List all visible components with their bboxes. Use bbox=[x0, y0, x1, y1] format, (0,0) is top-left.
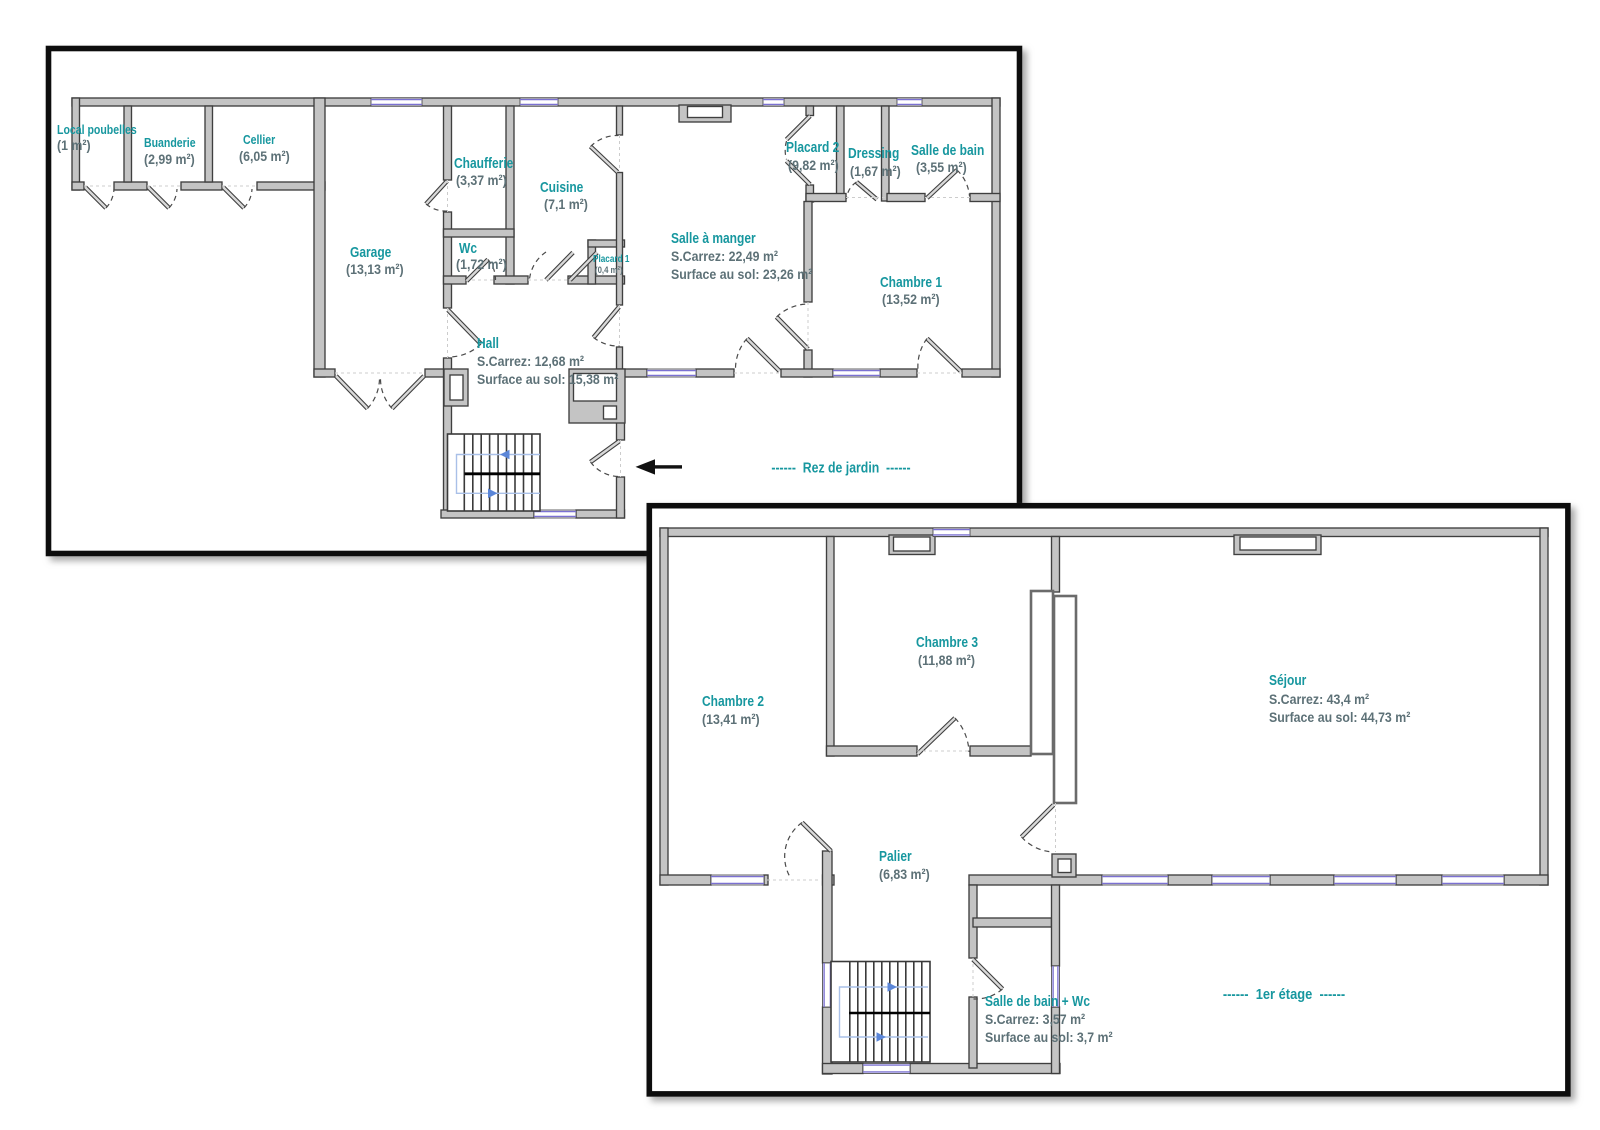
svg-text:(0,4 m²): (0,4 m²) bbox=[595, 264, 623, 275]
svg-text:S.Carrez: 22,49 m²: S.Carrez: 22,49 m² bbox=[671, 248, 779, 264]
svg-text:(13,13 m²): (13,13 m²) bbox=[346, 261, 404, 277]
svg-text:Cellier: Cellier bbox=[243, 132, 276, 147]
svg-text:Dressing: Dressing bbox=[848, 145, 899, 162]
svg-text:Placard 2: Placard 2 bbox=[786, 139, 840, 156]
svg-text:Wc: Wc bbox=[459, 240, 477, 257]
svg-text:------ Rez de jardin ------: ------ Rez de jardin ------ bbox=[771, 459, 911, 475]
svg-text:Salle de bain: Salle de bain bbox=[911, 142, 984, 159]
svg-text:S.Carrez: 43,4 m²: S.Carrez: 43,4 m² bbox=[1269, 691, 1370, 707]
svg-text:Placard 1: Placard 1 bbox=[593, 253, 629, 264]
svg-text:(2,99 m²): (2,99 m²) bbox=[144, 151, 195, 167]
svg-text:Salle à manger: Salle à manger bbox=[671, 230, 756, 247]
svg-text:Surface au sol: 3,7 m²: Surface au sol: 3,7 m² bbox=[985, 1029, 1113, 1045]
svg-text:Local poubelles: Local poubelles bbox=[57, 122, 137, 137]
svg-text:S.Carrez: 3,57 m²: S.Carrez: 3,57 m² bbox=[985, 1011, 1086, 1027]
svg-text:Cuisine: Cuisine bbox=[540, 179, 584, 196]
svg-text:Palier: Palier bbox=[879, 848, 912, 865]
svg-text:Surface au sol: 15,38 m²: Surface au sol: 15,38 m² bbox=[477, 371, 619, 387]
svg-text:(1,72 m²): (1,72 m²) bbox=[456, 256, 507, 272]
svg-text:(9,82 m²): (9,82 m²) bbox=[788, 157, 839, 173]
svg-text:Surface au sol: 44,73 m²: Surface au sol: 44,73 m² bbox=[1269, 709, 1411, 725]
svg-text:Surface au sol: 23,26 m²: Surface au sol: 23,26 m² bbox=[671, 266, 813, 282]
svg-text:(7,1 m²): (7,1 m²) bbox=[544, 196, 588, 212]
svg-text:(6,83 m²): (6,83 m²) bbox=[879, 866, 930, 882]
svg-text:(13,41 m²): (13,41 m²) bbox=[702, 711, 760, 727]
svg-text:(1 m²): (1 m²) bbox=[57, 137, 91, 153]
svg-text:Chambre 1: Chambre 1 bbox=[880, 274, 942, 291]
svg-text:(3,37 m²): (3,37 m²) bbox=[456, 172, 507, 188]
svg-text:(11,88 m²): (11,88 m²) bbox=[918, 652, 975, 668]
svg-text:Salle de bain + Wc: Salle de bain + Wc bbox=[985, 993, 1090, 1010]
svg-text:Chambre 2: Chambre 2 bbox=[702, 693, 764, 710]
svg-text:Garage: Garage bbox=[350, 244, 392, 261]
svg-text:Séjour: Séjour bbox=[1269, 672, 1307, 689]
svg-text:Chaufferie: Chaufferie bbox=[454, 155, 514, 172]
svg-text:(6,05 m²): (6,05 m²) bbox=[239, 148, 290, 164]
svg-text:------ 1er étage ------: ------ 1er étage ------ bbox=[1223, 985, 1346, 1002]
svg-text:(1,67 m²): (1,67 m²) bbox=[850, 163, 901, 179]
svg-text:S.Carrez: 12,68 m²: S.Carrez: 12,68 m² bbox=[477, 353, 585, 369]
svg-text:(13,52 m²): (13,52 m²) bbox=[882, 291, 940, 307]
svg-text:Buanderie: Buanderie bbox=[144, 135, 196, 150]
svg-text:Chambre 3: Chambre 3 bbox=[916, 634, 978, 651]
svg-text:(3,55 m²): (3,55 m²) bbox=[916, 159, 967, 175]
svg-text:Hall: Hall bbox=[477, 335, 499, 352]
